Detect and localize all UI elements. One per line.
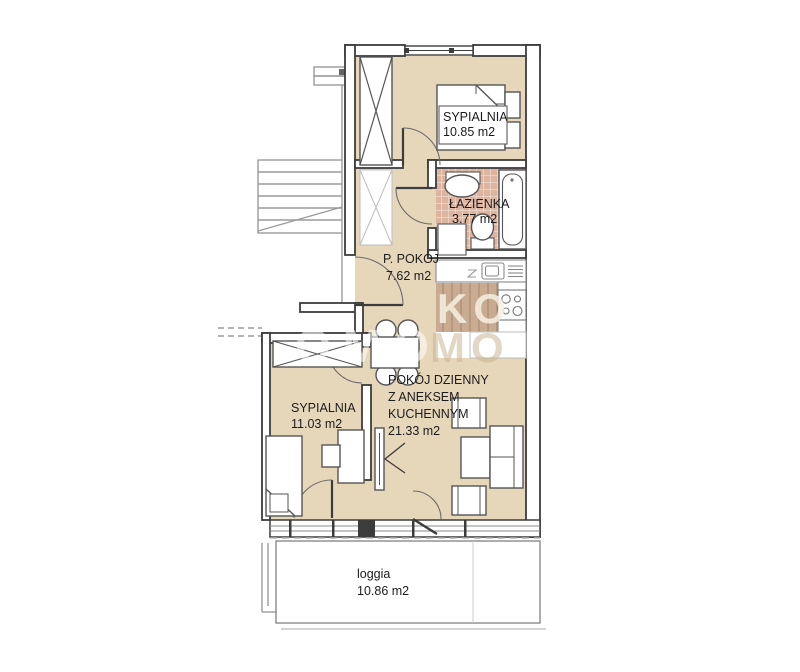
coffee-table-icon [461,437,490,478]
bedroom2-name: SYPIALNIA [291,401,356,415]
sofa-icon [490,426,523,488]
bed2-icon [266,436,302,516]
sink-icon [445,172,480,197]
bathroom-area: 3.77 m2 [452,212,497,226]
floor-plan-page: OMO KO MO SYPIALNIA 10.85 m2 ŁAZIENKA 3.… [0,0,800,672]
watermark-echo: OMO [295,320,441,372]
loggia-area: 10.86 m2 [357,584,409,598]
window-mullion [358,520,375,537]
living-name-line2: Z ANEKSEM [388,390,460,404]
bedroom1-name: SYPIALNIA [443,110,508,124]
watermark-line2: MO [430,324,510,371]
living-name-line1: POKÓJ DZIENNY [388,372,489,387]
window-band-bottom [270,520,540,537]
washer-icon [438,224,466,255]
label-bedroom1: SYPIALNIA 10.85 m2 [439,106,508,144]
bedroom2-area: 11.03 m2 [291,417,342,431]
bedroom1-area: 10.85 m2 [443,125,495,139]
closet-light-icon [360,170,392,245]
living-area: 21.33 m2 [388,424,440,438]
floor-plan-drawing: OMO KO MO SYPIALNIA 10.85 m2 ŁAZIENKA 3.… [0,0,800,672]
bathroom-name: ŁAZIENKA [449,197,510,211]
living-name-line3: KUCHENNYM [388,407,469,421]
label-loggia: loggia 10.86 m2 [357,567,409,598]
window-top [404,46,473,55]
staircase-icon [258,160,342,233]
armchair2-icon [452,486,486,515]
hall-name: P. POKÓJ [383,251,439,266]
wardrobe-icon [360,57,392,165]
hall-area: 7.62 m2 [386,269,431,283]
loggia-name: loggia [357,567,390,581]
